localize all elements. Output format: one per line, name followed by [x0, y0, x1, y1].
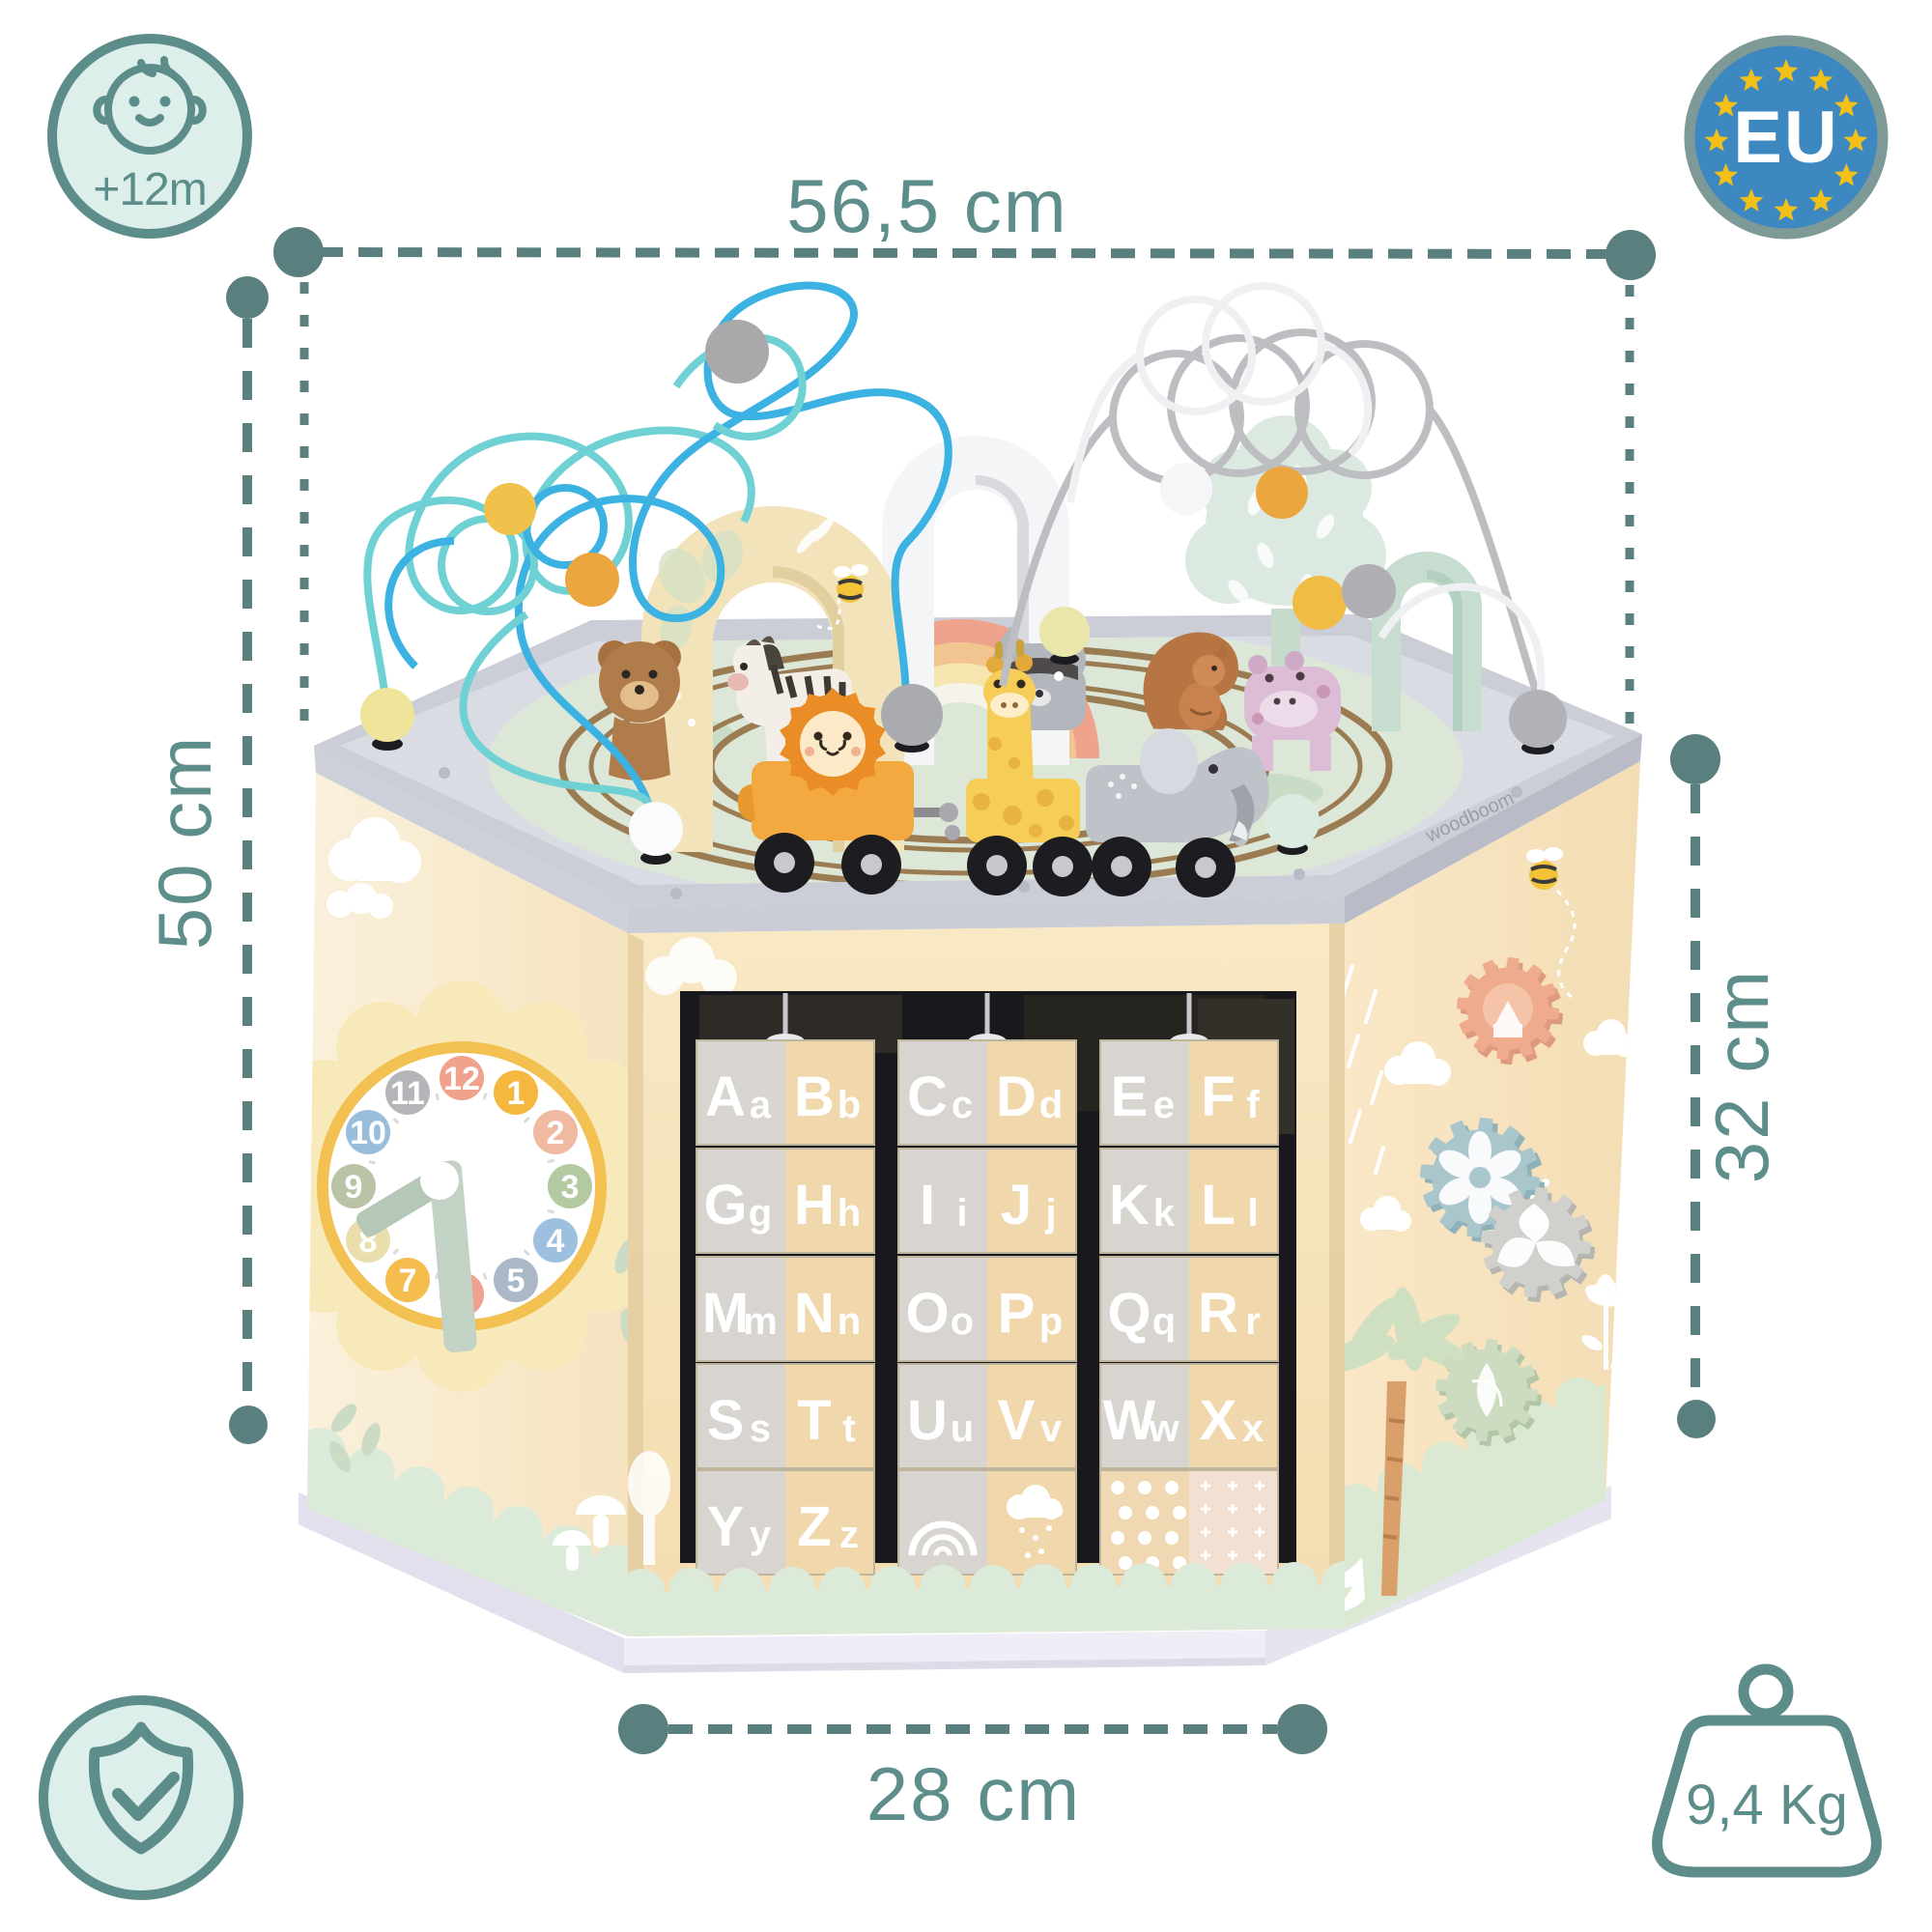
svg-text:1: 1 [507, 1075, 526, 1112]
svg-text:V: V [998, 1389, 1036, 1452]
svg-text:j: j [1044, 1192, 1056, 1235]
svg-text:y: y [750, 1514, 772, 1556]
svg-text:11: 11 [390, 1075, 425, 1112]
svg-text:w: w [1148, 1407, 1179, 1450]
svg-text:3: 3 [561, 1169, 580, 1206]
svg-text:S: S [707, 1389, 745, 1452]
svg-text:K: K [1109, 1174, 1150, 1236]
svg-text:a: a [750, 1084, 772, 1126]
svg-text:o: o [951, 1300, 974, 1343]
svg-text:f: f [1246, 1084, 1260, 1126]
svg-text:B: B [794, 1065, 835, 1128]
svg-text:10: 10 [350, 1115, 386, 1151]
svg-text:C: C [907, 1065, 948, 1128]
svg-text:Y: Y [707, 1495, 745, 1558]
svg-text:+12m: +12m [93, 164, 206, 215]
svg-text:h: h [838, 1192, 861, 1235]
svg-text:12: 12 [443, 1061, 480, 1097]
svg-text:W: W [1103, 1389, 1156, 1452]
svg-text:O: O [905, 1282, 949, 1345]
svg-text:d: d [1039, 1084, 1063, 1126]
svg-text:D: D [996, 1065, 1037, 1128]
svg-text:c: c [952, 1084, 973, 1126]
svg-text:50 cm: 50 cm [142, 735, 227, 950]
svg-text:P: P [998, 1282, 1036, 1345]
svg-text:N: N [794, 1282, 835, 1345]
svg-text:L: L [1201, 1174, 1235, 1236]
svg-text:m: m [743, 1300, 778, 1343]
svg-text:Z: Z [797, 1495, 831, 1558]
svg-text:l: l [1247, 1192, 1258, 1235]
svg-text:v: v [1040, 1407, 1063, 1450]
svg-text:J: J [1001, 1174, 1032, 1236]
svg-text:g: g [749, 1192, 772, 1235]
svg-text:G: G [703, 1174, 747, 1236]
svg-text:u: u [951, 1407, 974, 1450]
svg-text:4: 4 [547, 1223, 565, 1260]
svg-text:R: R [1198, 1282, 1238, 1345]
svg-text:5: 5 [507, 1263, 526, 1299]
svg-text:M: M [702, 1282, 749, 1345]
svg-text:b: b [838, 1084, 861, 1126]
svg-text:t: t [842, 1407, 855, 1450]
svg-text:X: X [1200, 1389, 1237, 1452]
svg-text:E: E [1111, 1065, 1149, 1128]
svg-text:H: H [794, 1174, 835, 1236]
svg-text:28 cm: 28 cm [867, 1751, 1081, 1836]
svg-text:32 cm: 32 cm [1699, 969, 1784, 1183]
svg-text:U: U [907, 1389, 948, 1452]
svg-text:T: T [797, 1389, 831, 1452]
svg-text:q: q [1152, 1300, 1176, 1343]
svg-text:9: 9 [345, 1169, 363, 1206]
svg-text:I: I [920, 1174, 935, 1236]
svg-text:z: z [839, 1514, 859, 1556]
svg-text:7: 7 [399, 1263, 417, 1299]
svg-text:2: 2 [547, 1115, 565, 1151]
svg-text:EU: EU [1733, 97, 1839, 179]
svg-text:F: F [1201, 1065, 1235, 1128]
svg-text:Q: Q [1107, 1282, 1151, 1345]
svg-text:i: i [956, 1192, 967, 1235]
svg-text:A: A [705, 1065, 746, 1128]
svg-text:k: k [1153, 1192, 1176, 1235]
svg-text:n: n [838, 1300, 861, 1343]
svg-text:e: e [1153, 1084, 1175, 1126]
svg-text:9,4 Kg: 9,4 Kg [1686, 1774, 1848, 1836]
svg-text:x: x [1242, 1407, 1264, 1450]
svg-text:56,5 cm: 56,5 cm [786, 163, 1067, 248]
svg-text:s: s [750, 1407, 771, 1450]
svg-text:p: p [1039, 1300, 1063, 1343]
svg-text:r: r [1245, 1300, 1261, 1343]
